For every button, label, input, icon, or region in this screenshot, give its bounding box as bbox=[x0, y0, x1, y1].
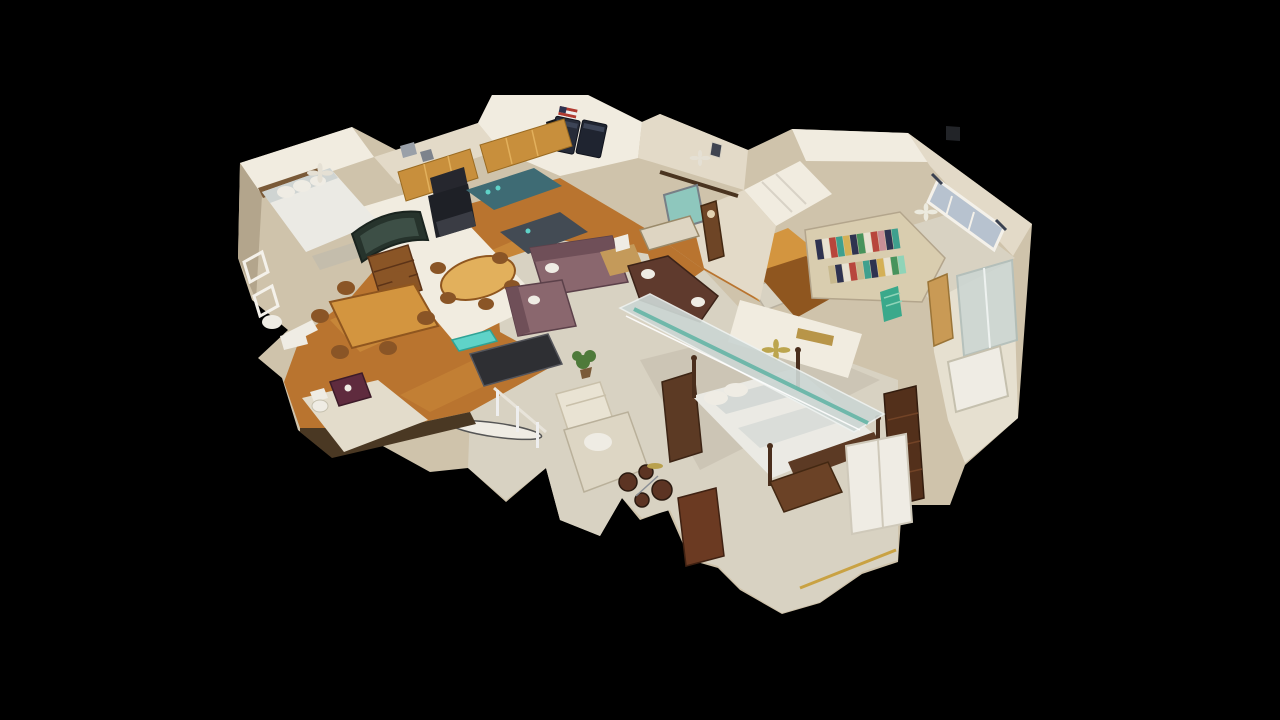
throw-pillow bbox=[691, 297, 705, 307]
throw-pillow bbox=[528, 296, 540, 305]
pillow bbox=[704, 391, 728, 405]
wall-segment bbox=[792, 129, 930, 162]
glassware bbox=[486, 190, 491, 195]
chair bbox=[417, 311, 435, 325]
chair bbox=[311, 309, 329, 323]
throw-pillow bbox=[641, 269, 655, 279]
chair bbox=[391, 271, 409, 285]
picture-frame bbox=[710, 142, 722, 158]
dollhouse-3d-view[interactable] bbox=[0, 0, 1280, 720]
chair bbox=[430, 262, 446, 274]
chair bbox=[478, 298, 494, 310]
bed-post-finial bbox=[691, 355, 697, 361]
chair bbox=[440, 292, 456, 304]
armoire bbox=[678, 488, 724, 566]
bed-post bbox=[692, 360, 696, 398]
viewer-canvas[interactable] bbox=[0, 0, 1280, 720]
tv-screen bbox=[946, 126, 960, 141]
bed-post-finial bbox=[795, 347, 801, 353]
bed-post-finial bbox=[767, 443, 773, 449]
toilet bbox=[312, 400, 328, 412]
glassware bbox=[496, 186, 501, 191]
bed-post bbox=[768, 448, 772, 486]
pillow bbox=[724, 383, 748, 397]
bathroom-fixture bbox=[262, 315, 282, 329]
chair bbox=[331, 345, 349, 359]
chair bbox=[379, 341, 397, 355]
pillow bbox=[277, 186, 295, 198]
chair bbox=[337, 281, 355, 295]
glassware bbox=[526, 229, 531, 234]
vanity-sink bbox=[345, 385, 352, 392]
pillow bbox=[293, 180, 311, 192]
throw-pillow bbox=[545, 263, 559, 273]
sofa-cushion bbox=[584, 433, 612, 451]
chair bbox=[492, 252, 508, 264]
clock-face bbox=[707, 210, 715, 218]
